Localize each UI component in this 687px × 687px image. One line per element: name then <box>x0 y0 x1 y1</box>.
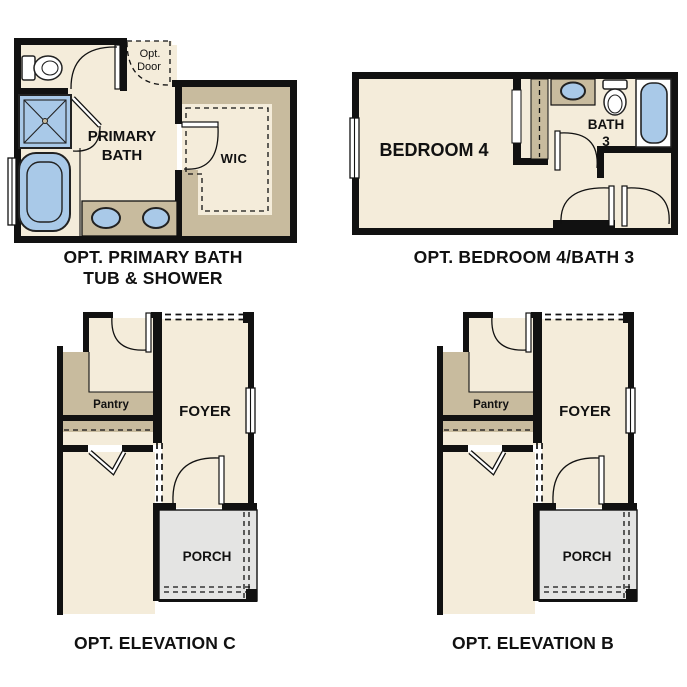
wic-door-leaf <box>182 122 218 127</box>
bathtub-window <box>8 158 16 225</box>
porch-label: PORCH <box>183 549 232 564</box>
toilet-fixture <box>22 56 62 80</box>
plan-elevation-c: Pantry FOYER PORCH <box>57 312 257 615</box>
upper-room-door-leaf <box>146 313 151 352</box>
primary-bath-title-line2: TUB & SHOWER <box>83 268 223 288</box>
bedroom4-bath3-title: OPT. BEDROOM 4/BATH 3 <box>414 247 635 267</box>
toilet-room-door-leaf <box>115 45 120 89</box>
toilet-fixture <box>603 80 627 115</box>
pantry-label: Pantry <box>93 399 129 411</box>
bathtub-fixture <box>19 153 70 231</box>
opt-door-label-line1: Opt. <box>140 48 161 60</box>
bedroom4-label: BEDROOM 4 <box>379 140 488 160</box>
hall-floor <box>63 452 155 614</box>
sink-fixture <box>92 208 120 228</box>
bedroom4-cased-opening <box>512 90 521 143</box>
sink-fixture <box>143 208 169 228</box>
bath3-label-line2: 3 <box>602 134 610 149</box>
bath3-label-line1: BATH <box>588 117 625 132</box>
floorplan-canvas: Opt. Door <box>0 0 687 687</box>
foyer-label: FOYER <box>179 403 231 420</box>
upper-room-floor <box>89 318 153 392</box>
wic-label: WIC <box>221 151 248 166</box>
porch-post <box>246 589 257 600</box>
shower-drain <box>43 119 48 124</box>
bath3-door-leaf <box>555 131 560 170</box>
shower-fixture <box>19 95 71 148</box>
foyer-window <box>246 388 255 433</box>
floorplan-sheet: Opt. Door <box>0 0 687 687</box>
elevation-b-title: OPT. ELEVATION B <box>452 633 614 653</box>
plan-elevation-b <box>437 312 637 615</box>
opt-door-label-line2: Door <box>137 61 161 73</box>
bedroom4-window <box>350 118 359 178</box>
primary-bath-label-line1: PRIMARY <box>88 128 157 145</box>
front-door-leaf <box>219 456 224 504</box>
elevation-c-title: OPT. ELEVATION C <box>74 633 236 653</box>
primary-bath-label-line2: BATH <box>102 147 143 164</box>
plan-bedroom4-bath3: BEDROOM 4 BATH 3 OPT. BEDROOM 4/BATH 3 <box>350 72 678 267</box>
entry-door-leaf <box>622 186 627 226</box>
primary-bath-title-line1: OPT. PRIMARY BATH <box>63 247 242 267</box>
sink-fixture <box>561 83 585 100</box>
bathtub-fixture <box>636 79 671 147</box>
hall-door-leaf <box>609 186 614 226</box>
plan-primary-bath: Opt. Door <box>8 38 297 288</box>
